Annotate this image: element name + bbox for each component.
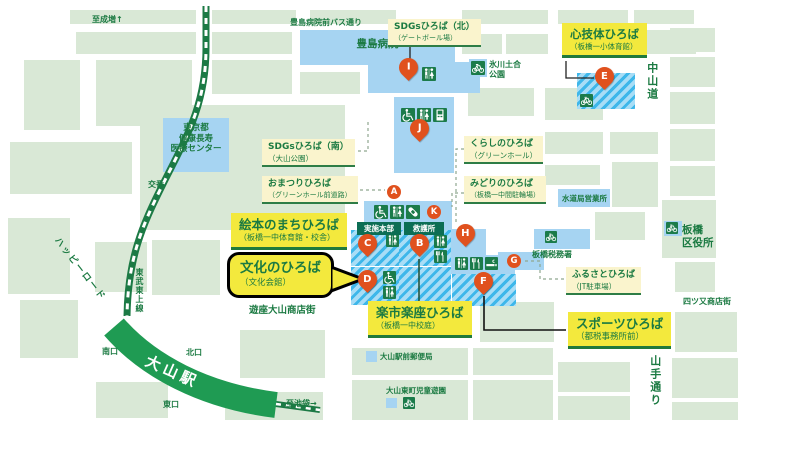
building-block <box>534 229 590 249</box>
road-label-nakasendo: 中山道 <box>645 62 659 101</box>
toilet-icon <box>383 286 396 299</box>
venue-title: SDGsひろば（北） <box>394 22 475 34</box>
venue-label-kurashi[interactable]: くらしのひろば （グリーンホール） <box>464 136 543 164</box>
bicycle-parking-icon <box>545 231 557 243</box>
city-block <box>20 300 78 358</box>
city-block <box>212 32 292 54</box>
building-hikawa-doai-park: 氷川土合 公園 <box>489 60 521 80</box>
city-block <box>672 358 738 398</box>
city-block <box>473 348 553 375</box>
venue-sub: （都税事務所前） <box>576 332 663 343</box>
toilet-icon <box>386 234 399 247</box>
venue-sub: （大山公園） <box>268 154 349 164</box>
venue-title: くらしのひろば <box>470 139 537 151</box>
railway-label-tobu-tojo: 東武東上線 <box>134 268 144 313</box>
restaurant-icon <box>434 250 447 263</box>
city-block <box>558 362 630 392</box>
road-label-yotsumata: 四ツ又商店街 <box>683 297 731 307</box>
venue-label-midori[interactable]: みどりのひろば （板橋一中間駐輪場） <box>464 176 546 204</box>
venue-label-sdgs-south[interactable]: SDGsひろば（南） （大山公園） <box>262 139 355 167</box>
wheelchair-icon <box>374 205 388 219</box>
station-south-exit: 南口 <box>102 347 118 357</box>
city-block <box>610 132 658 154</box>
venue-sub: （文化会館） <box>240 278 321 289</box>
wheelchair-icon <box>383 271 396 284</box>
venue-label-ehon[interactable]: 絵本のまちひろば （板橋一中体育館・校舎） <box>231 213 347 250</box>
city-block <box>24 60 80 130</box>
city-block <box>670 92 715 124</box>
building-medical-center: 東京都 健康長寿 医療センター <box>163 123 229 155</box>
city-block <box>212 60 292 94</box>
venue-label-sdgs-north[interactable]: SDGsひろば（北） （ゲートボール場） <box>388 19 481 47</box>
city-block <box>240 330 325 378</box>
facility-hq-tag: 実施本部 <box>357 222 401 235</box>
vending-machine-icon <box>433 108 447 122</box>
city-block <box>670 28 715 52</box>
venue-sub: （板橋一中間駐輪場） <box>470 191 540 200</box>
bicycle-parking-icon <box>666 222 678 234</box>
city-block <box>506 34 548 54</box>
venue-label-rakuichi[interactable]: 楽市楽座ひろば （板橋一中校庭） <box>368 301 472 338</box>
road-label-hospital-bus-street: 豊島病院前バス通り <box>290 18 362 28</box>
venue-area-block <box>399 267 451 305</box>
city-block <box>612 162 658 207</box>
station-east-exit: 東口 <box>163 400 179 410</box>
city-block <box>545 132 603 154</box>
road-label-yuza-oyama: 遊座大山商店街 <box>249 305 316 317</box>
venue-title: スポーツひろば <box>576 316 663 332</box>
city-block <box>675 312 737 352</box>
city-block <box>10 142 132 194</box>
venue-sub: （グリーンホール前道路） <box>268 191 352 200</box>
venue-sub: （JT駐車場） <box>572 282 635 292</box>
venue-title: ふるさとひろば <box>572 270 635 282</box>
building-tax-office: 板橋税務署 <box>532 250 572 260</box>
city-block <box>558 396 630 420</box>
venue-sub: （板橋一中体育館・校舎） <box>239 233 339 243</box>
connector-midori <box>452 193 464 207</box>
station-north-exit: 北口 <box>186 348 202 358</box>
smoking-icon <box>485 257 498 270</box>
toilet-icon <box>422 67 436 81</box>
marker-circle-K[interactable]: K <box>427 205 441 219</box>
city-block <box>70 10 196 24</box>
building-koban: 交番 <box>148 180 164 190</box>
road-label-to-narimasu: 至成増↑ <box>92 15 123 25</box>
city-block <box>670 129 715 161</box>
city-block <box>595 212 645 240</box>
city-block <box>480 302 554 342</box>
city-block <box>558 10 628 24</box>
restaurant-icon <box>470 257 483 270</box>
facility-first-aid-tag: 救護所 <box>404 222 444 235</box>
venue-label-bunka[interactable]: 文化のひろば （文化会館） <box>227 252 334 298</box>
city-block <box>675 262 715 292</box>
city-block <box>96 382 168 418</box>
venue-sub: （板橋一中校庭） <box>376 321 464 331</box>
building-post-office: 大山駅前郵便局 <box>380 352 433 361</box>
marker-circle-A[interactable]: A <box>387 185 401 199</box>
connector-kurashi <box>456 149 464 225</box>
city-block <box>300 72 360 94</box>
road-label-to-ikebukuro: 至池袋→ <box>286 399 317 409</box>
city-block <box>545 165 600 185</box>
bicycle-parking-icon <box>471 61 485 75</box>
building-waterworks-office: 水道局営業所 <box>562 194 607 203</box>
city-block <box>473 380 553 420</box>
first-aid-icon <box>406 205 420 219</box>
city-block <box>152 240 220 295</box>
toilet-icon <box>434 235 447 248</box>
building-children-park: 大山東町児童遊園 <box>386 386 446 395</box>
venue-label-shingitai[interactable]: 心技体ひろば （板橋一小体育館） <box>562 23 647 58</box>
venue-title: 心技体ひろば <box>570 27 639 42</box>
toilet-icon <box>390 205 404 219</box>
marker-circle-G[interactable]: G <box>507 254 521 268</box>
building-block <box>386 398 397 408</box>
venue-sub: （ゲートボール場） <box>394 34 475 43</box>
city-block <box>670 166 715 196</box>
toilet-icon <box>455 257 468 270</box>
venue-label-sports[interactable]: スポーツひろば （都税事務所前） <box>568 312 671 349</box>
venue-title: 文化のひろば <box>240 260 321 278</box>
venue-title: おまつりひろば <box>268 179 352 191</box>
bicycle-parking-icon <box>403 397 415 409</box>
bicycle-parking-icon <box>580 94 593 107</box>
venue-title: 楽市楽座ひろば <box>376 305 464 321</box>
venue-title: みどりのひろば <box>470 179 540 191</box>
venue-sub: （グリーンホール） <box>470 151 537 161</box>
event-area-map: 至成増↑ 豊島病院前バス通り 中山道 山手通り ハッピーロード 東武東上線 至池… <box>0 0 800 450</box>
road-label-yamate-dori: 山手通り <box>648 355 662 407</box>
city-block <box>672 402 738 420</box>
building-ward-office: 板橋 区役所 <box>682 224 714 250</box>
venue-label-furusato[interactable]: ふるさとひろば （JT駐車場） <box>566 267 641 295</box>
city-block <box>212 10 296 24</box>
venue-label-omatsuri[interactable]: おまつりひろば （グリーンホール前道路） <box>262 176 358 204</box>
venue-title: SDGsひろば（南） <box>268 142 349 154</box>
city-block <box>670 57 715 87</box>
venue-title: 絵本のまちひろば <box>239 217 339 233</box>
city-block <box>76 32 196 54</box>
building-block <box>366 351 377 362</box>
venue-sub: （板橋一小体育館） <box>570 42 639 52</box>
city-block <box>634 10 694 24</box>
